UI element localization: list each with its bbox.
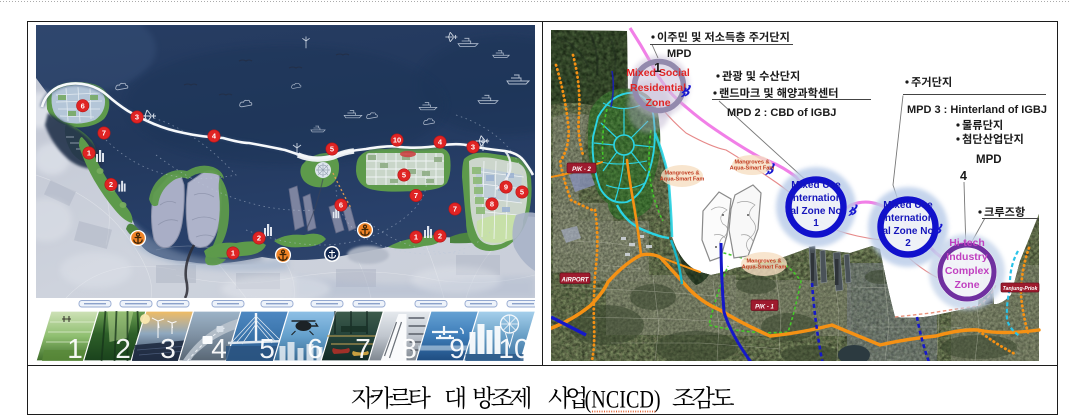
svg-text:3: 3 bbox=[160, 333, 176, 362]
svg-text:Internation: Internation bbox=[790, 193, 842, 204]
svg-text:10: 10 bbox=[498, 333, 529, 362]
svg-text:4: 4 bbox=[211, 333, 227, 362]
svg-text:Zone: Zone bbox=[954, 279, 979, 291]
svg-text:1: 1 bbox=[414, 233, 418, 242]
svg-text:8: 8 bbox=[490, 200, 494, 209]
svg-text:(NCICD): (NCICD) bbox=[585, 387, 661, 414]
svg-text:1: 1 bbox=[231, 249, 235, 258]
svg-text:6: 6 bbox=[307, 333, 323, 362]
svg-text:Tanjung-Priok: Tanjung-Priok bbox=[1003, 286, 1039, 292]
svg-text:9: 9 bbox=[504, 183, 508, 192]
svg-text:7: 7 bbox=[355, 333, 371, 362]
svg-text:7: 7 bbox=[414, 191, 418, 200]
svg-text:Zone: Zone bbox=[645, 97, 670, 109]
svg-text:7: 7 bbox=[102, 129, 106, 138]
svg-text:5: 5 bbox=[402, 171, 406, 180]
svg-text:1: 1 bbox=[87, 149, 91, 158]
svg-text:9: 9 bbox=[449, 333, 465, 362]
svg-text:Industry: Industry bbox=[946, 251, 988, 263]
svg-text:Hi-tech: Hi-tech bbox=[949, 237, 985, 249]
svg-text:1: 1 bbox=[654, 60, 661, 75]
svg-text:PIK - 1: PIK - 1 bbox=[755, 304, 774, 310]
svg-text:2: 2 bbox=[115, 333, 131, 362]
svg-text:Mixed Use: Mixed Use bbox=[883, 200, 933, 211]
svg-text:3: 3 bbox=[135, 113, 139, 122]
svg-text:5: 5 bbox=[259, 333, 275, 362]
svg-text:al Zone No: al Zone No bbox=[882, 226, 933, 237]
svg-text:AIRPORT: AIRPORT bbox=[561, 277, 590, 283]
svg-text:1: 1 bbox=[813, 218, 819, 229]
svg-text:Aqua-Smart Fam: Aqua-Smart Fam bbox=[660, 177, 705, 183]
svg-text:2: 2 bbox=[257, 234, 261, 243]
svg-text:2: 2 bbox=[109, 180, 113, 189]
svg-text:6: 6 bbox=[339, 201, 343, 210]
svg-text:MPD 2 : CBD of IGBJ: MPD 2 : CBD of IGBJ bbox=[727, 107, 836, 119]
svg-text:MPD 3 : Hinterland of IGBJ: MPD 3 : Hinterland of IGBJ bbox=[907, 104, 1047, 116]
svg-text:MPD: MPD bbox=[667, 48, 692, 60]
svg-text:Aqua-Smart Fam: Aqua-Smart Fam bbox=[730, 166, 775, 172]
svg-text:Complex: Complex bbox=[945, 265, 990, 277]
svg-text:2: 2 bbox=[905, 238, 911, 249]
svg-text:10: 10 bbox=[393, 136, 401, 145]
svg-text:5: 5 bbox=[520, 188, 524, 197]
svg-text:al Zone No: al Zone No bbox=[790, 206, 841, 217]
svg-text:Mixed Use: Mixed Use bbox=[791, 180, 841, 191]
svg-text:Internation: Internation bbox=[882, 213, 934, 224]
svg-text:8: 8 bbox=[401, 333, 417, 362]
svg-text:5: 5 bbox=[330, 145, 334, 154]
svg-text:7: 7 bbox=[453, 205, 457, 214]
svg-text:Aqua-Smart Fam: Aqua-Smart Fam bbox=[742, 265, 787, 271]
svg-text:1: 1 bbox=[67, 333, 83, 362]
svg-text:3: 3 bbox=[471, 143, 475, 152]
svg-text:PIK - 2: PIK - 2 bbox=[572, 167, 591, 173]
svg-text:MPD: MPD bbox=[976, 154, 1002, 166]
svg-text:2: 2 bbox=[438, 232, 442, 241]
svg-text:6: 6 bbox=[81, 101, 85, 110]
svg-text:Residential: Residential bbox=[630, 82, 686, 94]
svg-text:4: 4 bbox=[960, 169, 967, 183]
